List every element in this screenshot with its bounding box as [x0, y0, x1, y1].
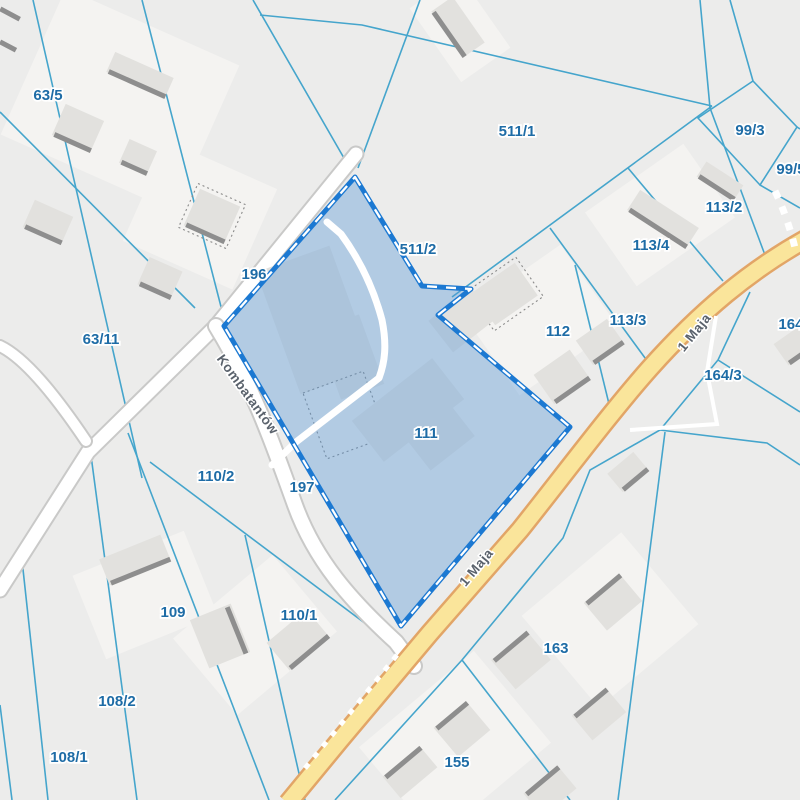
parcel-label: 197 — [289, 479, 314, 496]
parcel-label: 99/5 — [776, 161, 800, 178]
map-viewport[interactable]: 63/563/11196197511/1511/299/399/5113/211… — [0, 0, 800, 800]
parcel-label: 113/2 — [706, 199, 743, 216]
parcel-label: 111 — [414, 425, 437, 442]
parcel-label: 164/3 — [704, 367, 742, 384]
parcel-label: 108/2 — [98, 693, 136, 710]
parcel-label: 110/2 — [198, 468, 235, 485]
parcel-label: 163 — [543, 640, 568, 657]
parcel-label: 511/1 — [499, 123, 536, 140]
parcel-label: 109 — [160, 604, 185, 621]
parcel-label: 164/ — [778, 316, 800, 333]
parcel-label: 196 — [241, 266, 266, 283]
parcel-label: 112 — [546, 323, 570, 340]
parcel-label: 110/1 — [281, 607, 318, 624]
parcel-label: 63/11 — [83, 331, 120, 348]
parcel-label: 113/4 — [633, 237, 670, 254]
parcel-label: 99/3 — [735, 122, 764, 139]
parcel-label: 108/1 — [50, 749, 88, 766]
parcel-label: 155 — [444, 754, 469, 771]
parcel-label: 63/5 — [33, 87, 62, 104]
parcel-label: 113/3 — [610, 312, 647, 329]
parcel-label: 511/2 — [400, 241, 437, 258]
cadastral-map-canvas[interactable]: 63/563/11196197511/1511/299/399/5113/211… — [0, 0, 800, 800]
